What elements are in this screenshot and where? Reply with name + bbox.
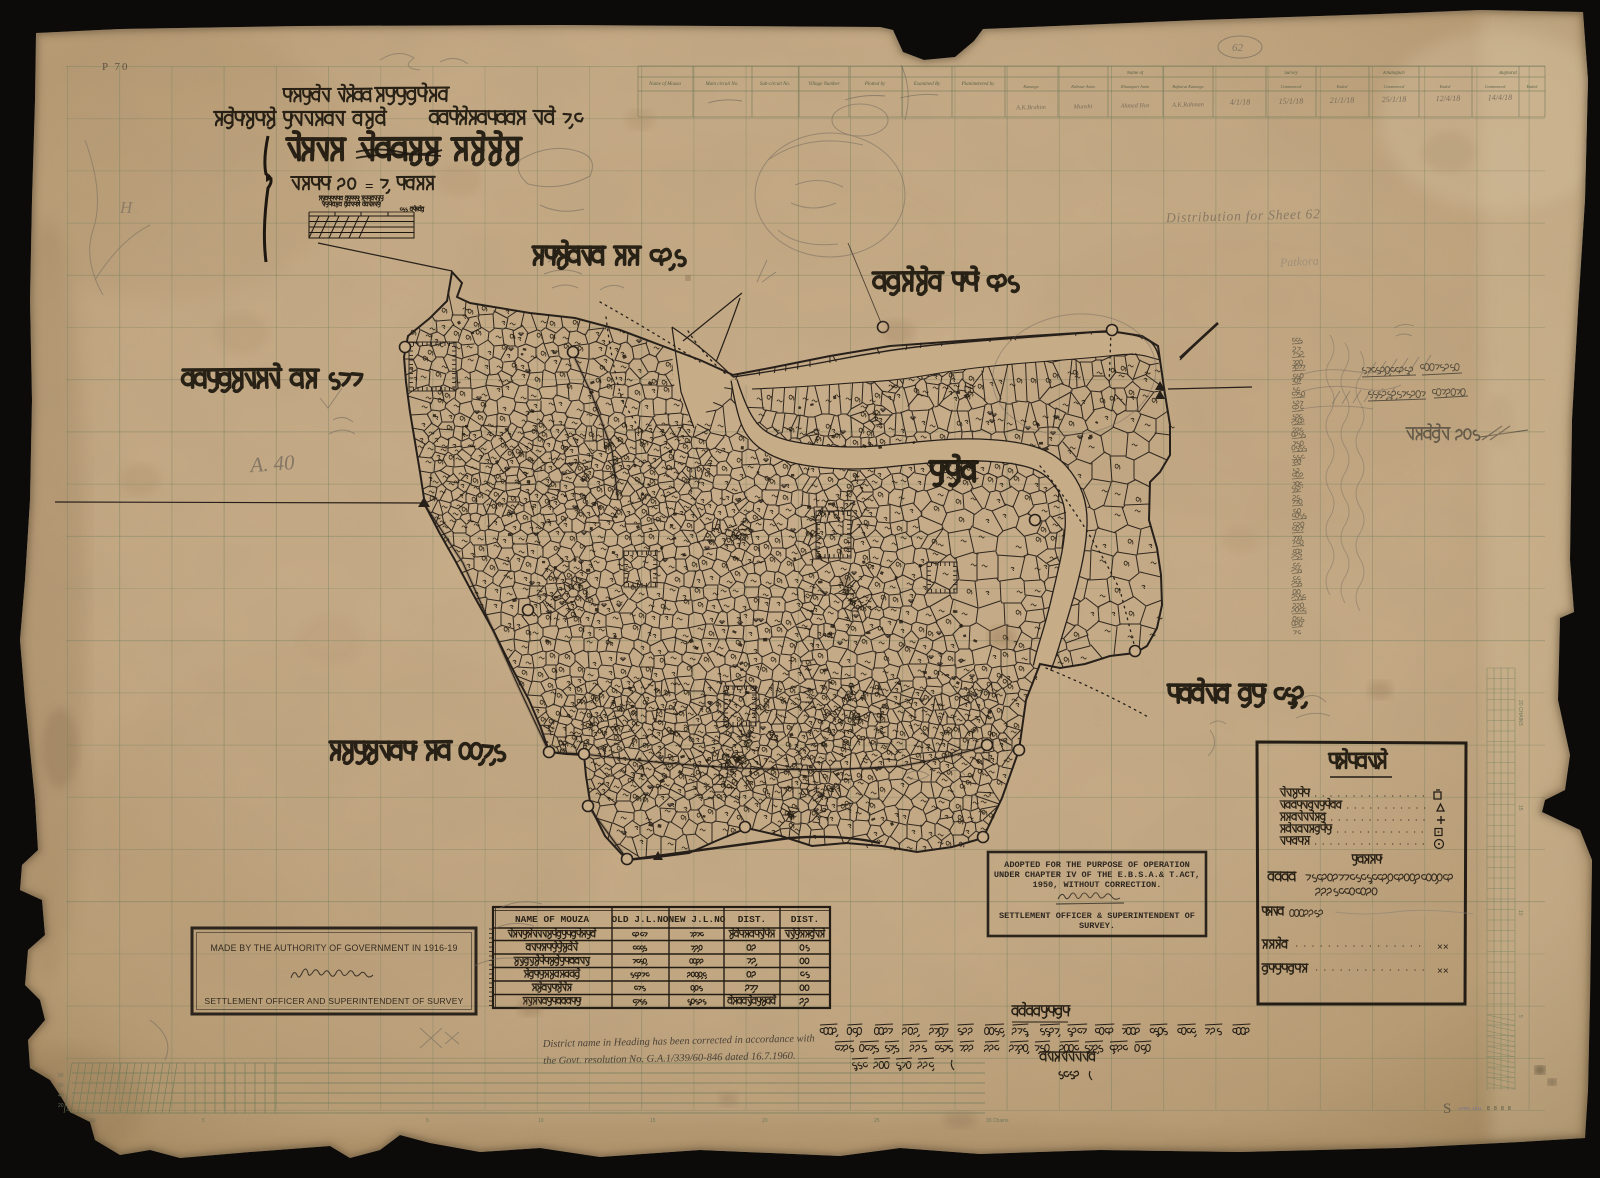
svg-text:Commenced: Commenced [1485, 84, 1507, 89]
svg-text:Survey: Survey [1284, 71, 1298, 76]
svg-text:OLD J.L.NO: OLD J.L.NO [611, 914, 668, 925]
svg-text:DIST.: DIST. [738, 914, 767, 925]
svg-text:NEW J.L.NO: NEW J.L.NO [668, 914, 725, 925]
svg-text:15: 15 [1517, 805, 1523, 811]
svg-text:Ended: Ended [1526, 84, 1539, 89]
svg-text:25: 25 [874, 1118, 880, 1124]
svg-text:25/1/18: 25/1/18 [1382, 95, 1407, 104]
svg-text:5: 5 [1517, 1015, 1523, 1018]
svg-text:8: 8 [1501, 1106, 1504, 1112]
svg-text:NAME OF MOUZA: NAME OF MOUZA [515, 914, 589, 925]
svg-text:8: 8 [1494, 1106, 1497, 1112]
svg-text:Ahmed Hus: Ahmed Hus [1120, 102, 1150, 110]
svg-text:A.K.Brahim: A.K.Brahim [1015, 104, 1046, 112]
svg-text:12/4/18: 12/4/18 [1436, 94, 1461, 103]
svg-text:15: 15 [650, 1118, 656, 1124]
svg-text:SETTLEMENT OFFICER AND SUPER: SETTLEMENT OFFICER AND SUPERINTENDENT OF… [204, 996, 463, 1006]
svg-text:DIST.: DIST. [791, 914, 820, 925]
svg-text:Kithwar Amin: Kithwar Amin [1070, 84, 1095, 89]
svg-text:Khanapuri: Khanapuri [1382, 71, 1405, 76]
svg-text:××: ×× [1437, 966, 1449, 977]
svg-text:80: 80 [58, 1073, 64, 1079]
svg-text:=: = [365, 179, 374, 195]
svg-text:Munshi: Munshi [1073, 103, 1093, 110]
svg-text:H: H [119, 198, 134, 217]
svg-text:14/4/18: 14/4/18 [1488, 93, 1513, 102]
svg-text:Kanungo: Kanungo [1022, 84, 1038, 89]
svg-text:8: 8 [1487, 1106, 1490, 1112]
svg-text:Khanapuri Amin: Khanapuri Amin [1120, 84, 1149, 89]
svg-text:20: 20 [58, 1103, 64, 1109]
svg-text:Name of: Name of [1126, 71, 1144, 76]
svg-text:5: 5 [202, 1118, 205, 1124]
svg-text:10: 10 [538, 1118, 544, 1124]
svg-text:21/1/18: 21/1/18 [1330, 96, 1355, 105]
svg-text:A.K.Rahman: A.K.Rahman [1171, 101, 1204, 109]
svg-text:Ended: Ended [1439, 84, 1452, 89]
svg-text:20 CHAINS: 20 CHAINS [1517, 700, 1523, 727]
svg-text:APRIL 1911: APRIL 1911 [1458, 1106, 1482, 1111]
svg-text:Commenced: Commenced [1384, 84, 1406, 89]
svg-text:SURVEY.: SURVEY. [1079, 921, 1115, 931]
svg-text:Village Number: Village Number [808, 82, 839, 87]
svg-text:Sub-circuit No.: Sub-circuit No. [760, 82, 790, 87]
svg-text:Patkora: Patkora [1279, 254, 1319, 270]
svg-text:Ended: Ended [1336, 84, 1349, 89]
svg-text:62: 62 [1232, 42, 1244, 54]
svg-text:20: 20 [762, 1118, 768, 1124]
svg-text:S: S [1443, 1101, 1451, 1117]
svg-text:Planimetered by: Planimetered by [961, 82, 996, 87]
svg-text:10: 10 [1517, 910, 1523, 916]
svg-text:××: ×× [1437, 942, 1449, 953]
svg-text:8: 8 [1508, 1106, 1511, 1112]
svg-text:Bujharat: Bujharat [1499, 71, 1517, 76]
svg-text:P 70: P 70 [102, 61, 129, 73]
svg-text:Examined By: Examined By [913, 82, 941, 87]
svg-text:15/1/18: 15/1/18 [1279, 96, 1304, 105]
svg-text:Name of Mouza: Name of Mouza [648, 82, 681, 87]
svg-text:MADE BY THE AUTHORITY OF GOVER: MADE BY THE AUTHORITY OF GOVERNMENT IN 1… [210, 943, 457, 953]
svg-text:Main circuit No.: Main circuit No. [704, 82, 738, 87]
svg-text:UNDER CHAPTER IV OF THE E.B.S.: UNDER CHAPTER IV OF THE E.B.S.A.& T.ACT, [994, 870, 1200, 880]
svg-text:A. 40: A. 40 [247, 450, 295, 477]
svg-text:5: 5 [426, 1118, 429, 1124]
svg-text:Plotted by: Plotted by [864, 82, 886, 87]
svg-text:Commenced: Commenced [1281, 84, 1303, 89]
svg-text:ADOPTED FOR THE PURPOSE OF OPE: ADOPTED FOR THE PURPOSE OF OPERATION [1004, 860, 1190, 870]
svg-text:4/1/18: 4/1/18 [1230, 97, 1251, 106]
svg-text:30 Chains: 30 Chains [986, 1118, 1009, 1124]
svg-text:Bujharat Kanungo: Bujharat Kanungo [1172, 84, 1203, 89]
